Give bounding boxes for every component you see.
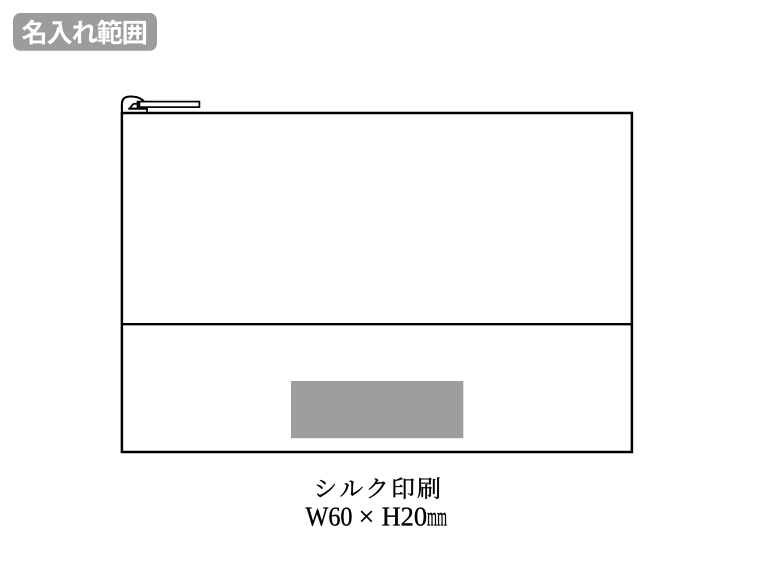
svg-text:×: × <box>359 502 375 533</box>
svg-text:H20: H20 <box>382 501 427 532</box>
svg-text:W60: W60 <box>306 501 353 532</box>
svg-text:mm: mm <box>427 501 447 532</box>
